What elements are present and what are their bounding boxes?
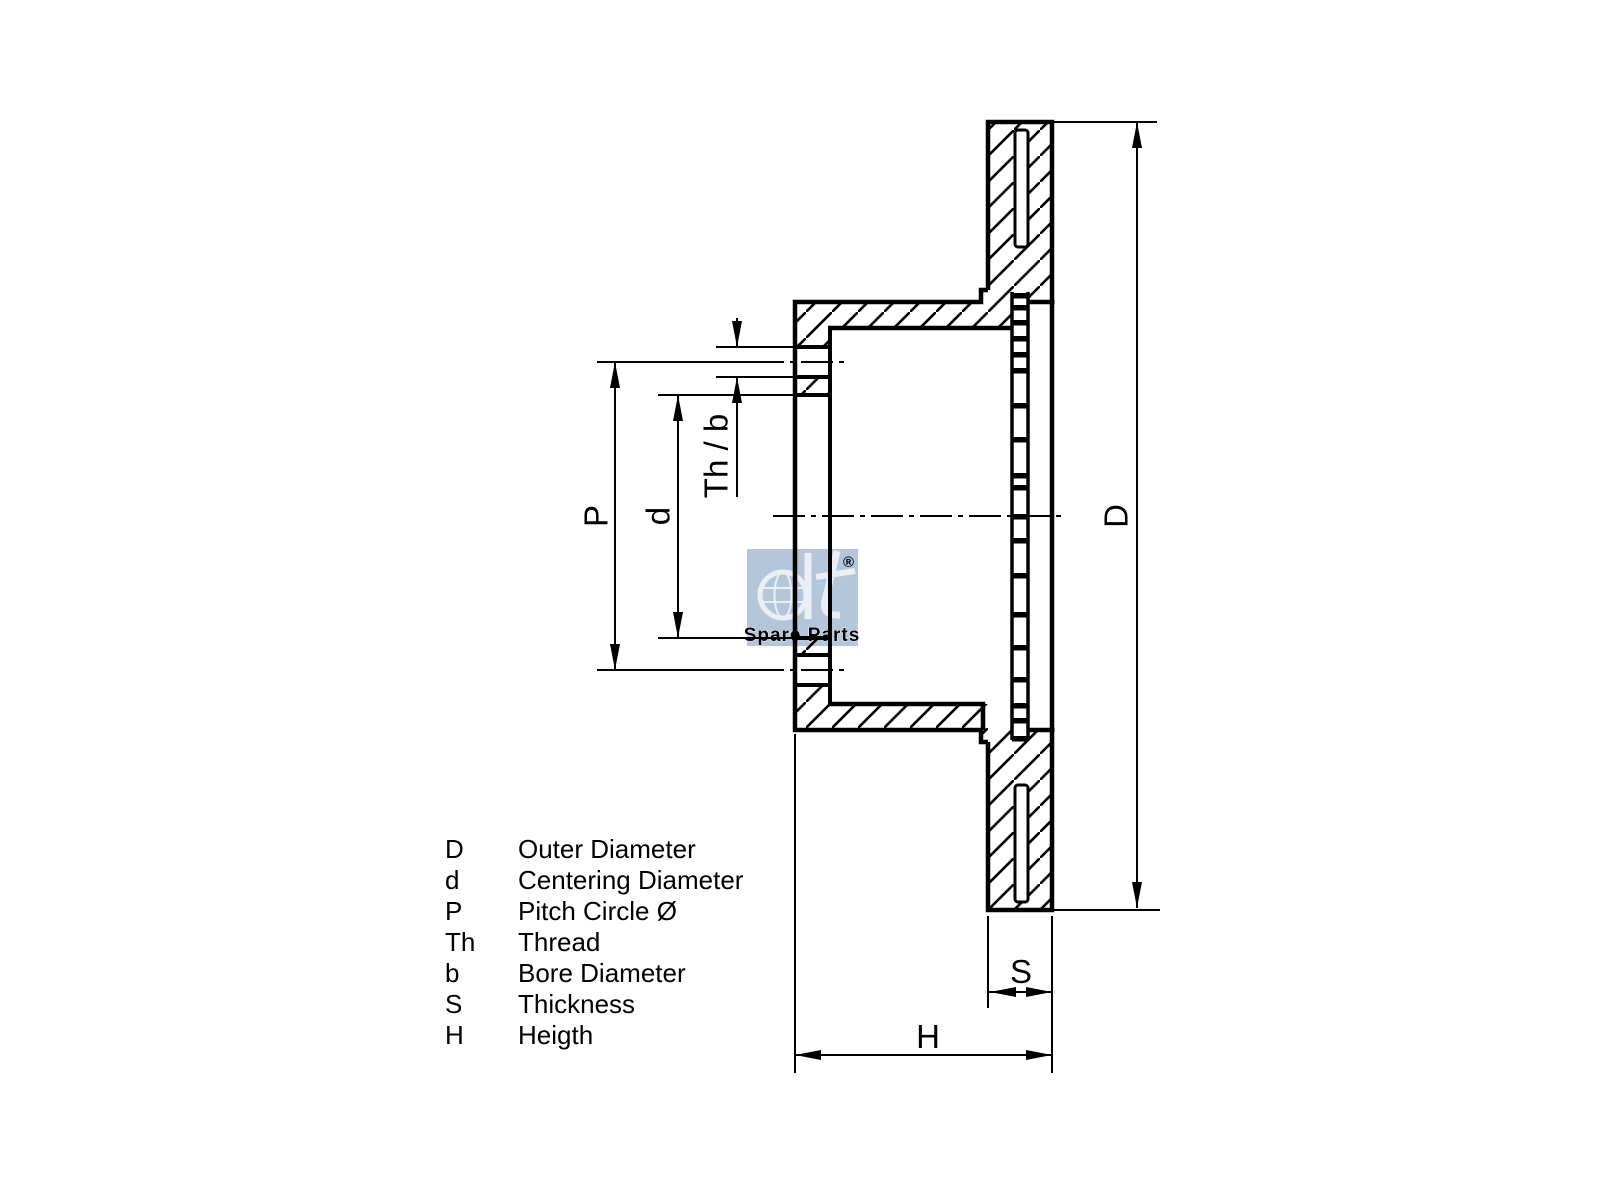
legend-description: Outer Diameter [518,834,696,864]
legend-description: Heigth [518,1020,593,1050]
bottom-vent-slot [1015,785,1028,902]
thread-bore-label: Th / b [698,414,735,498]
thickness-label: S [1010,953,1032,990]
legend-symbol: d [445,865,459,895]
dt-watermark: ® Spare Parts [744,549,861,646]
registered-trademark-symbol: ® [843,554,854,571]
legend-symbol: H [445,1020,464,1050]
height-label: H [916,1018,940,1055]
hatch-flange-lower-segment [795,638,830,655]
legend-symbol: P [445,896,462,926]
page: { "watermark": { "bg_color": "#b4c7da", … [0,0,1600,1200]
outer-diameter-label: D [1098,504,1135,528]
brake-disc-technical-drawing: ® Spare Parts [0,0,1600,1200]
legend-symbol: D [445,834,464,864]
hatch-flange-upper-segment [795,377,830,395]
legend-description: Thickness [518,989,635,1019]
legend-description: Thread [518,927,600,957]
legend-description: Bore Diameter [518,958,686,988]
centering-diameter-label: d [640,507,677,525]
legend-description: Centering Diameter [518,865,744,895]
legend-symbol: b [445,958,459,988]
top-vent-slot [1015,130,1028,247]
legend-symbol: S [445,989,462,1019]
legend-row: Th Thread [445,927,600,957]
legend-description: Pitch Circle Ø [518,896,677,926]
pitch-circle-label: P [578,505,615,527]
legend-symbol: Th [445,927,475,957]
